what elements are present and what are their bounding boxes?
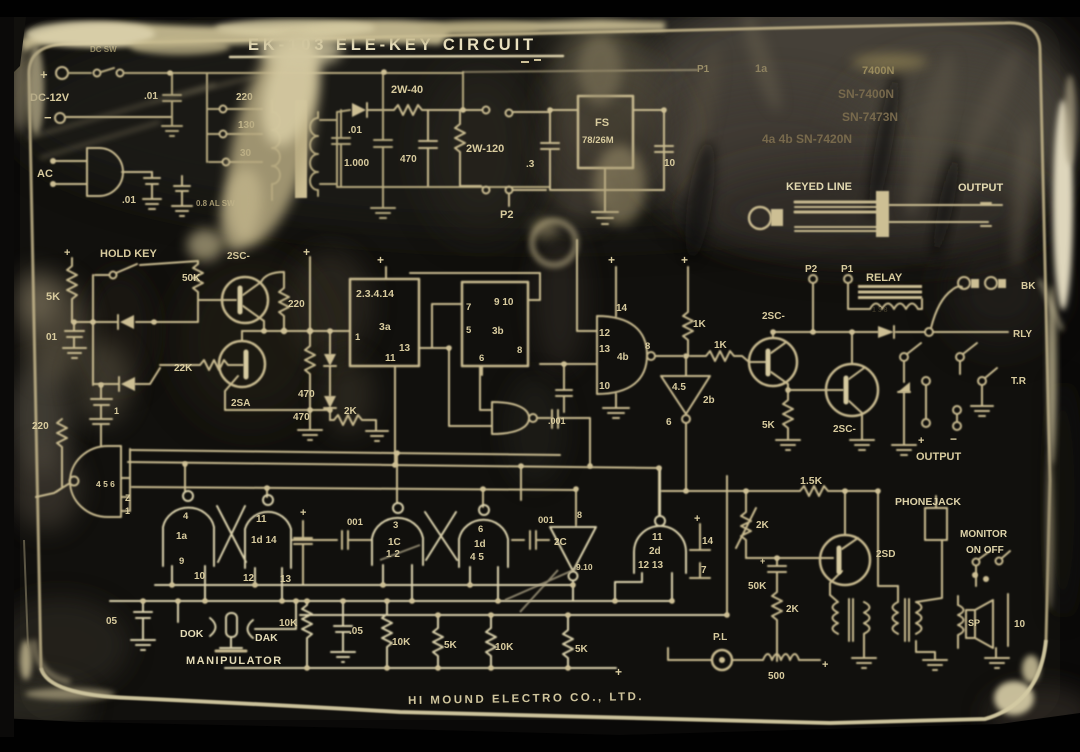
svg-text:HOLD KEY: HOLD KEY: [100, 248, 158, 260]
svg-text:+: +: [377, 253, 384, 267]
svg-text:2SD: 2SD: [876, 549, 895, 560]
svg-text:PHONEJACK: PHONEJACK: [895, 496, 961, 508]
svg-text:01: 01: [46, 332, 58, 343]
svg-text:001: 001: [347, 517, 364, 528]
svg-text:2SC-: 2SC-: [762, 311, 785, 322]
svg-text:5K: 5K: [444, 640, 458, 651]
svg-text:12 13: 12 13: [638, 560, 663, 571]
svg-text:1 3 8: 1 3 8: [872, 307, 888, 314]
svg-text:05: 05: [106, 616, 118, 627]
svg-text:4 5: 4 5: [470, 552, 484, 563]
svg-text:RELAY: RELAY: [866, 272, 903, 284]
svg-text:14: 14: [616, 303, 628, 314]
svg-text:2.3.4.14: 2.3.4.14: [356, 288, 394, 300]
svg-text:5K: 5K: [762, 420, 776, 431]
svg-text:OUTPUT: OUTPUT: [958, 182, 1004, 194]
svg-text:12: 12: [599, 328, 611, 339]
svg-text:+: +: [760, 556, 765, 566]
svg-text:2K: 2K: [786, 604, 800, 615]
svg-text:5K: 5K: [46, 291, 60, 303]
svg-text:1.5K: 1.5K: [800, 475, 823, 487]
svg-text:+: +: [303, 245, 310, 259]
svg-text:6: 6: [478, 524, 483, 535]
svg-text:10K: 10K: [392, 637, 411, 648]
svg-text:220: 220: [288, 299, 305, 310]
svg-text:2SA: 2SA: [231, 398, 250, 409]
svg-text:3: 3: [393, 520, 398, 531]
svg-text:2b: 2b: [703, 395, 715, 406]
svg-text:+: +: [64, 247, 70, 259]
svg-text:2W-40: 2W-40: [391, 84, 423, 96]
svg-text:8: 8: [577, 510, 582, 520]
svg-text:10: 10: [1014, 619, 1026, 630]
svg-text:2SC-: 2SC-: [227, 251, 250, 262]
svg-text:AC: AC: [37, 168, 53, 180]
svg-text:ON OFF: ON OFF: [966, 545, 1004, 556]
svg-text:+: +: [300, 507, 306, 519]
svg-text:001: 001: [538, 515, 555, 526]
svg-text:MONITOR: MONITOR: [960, 529, 1008, 540]
svg-text:4.5: 4.5: [672, 382, 686, 393]
svg-text:SN-7400N: SN-7400N: [838, 87, 894, 101]
svg-text:1C: 1C: [388, 537, 401, 548]
svg-text:+: +: [608, 253, 615, 267]
svg-text:4a 4b SN-7420N: 4a 4b SN-7420N: [762, 132, 852, 146]
svg-text:T.R: T.R: [1011, 376, 1027, 387]
svg-text:+: +: [681, 253, 688, 267]
svg-text:1d: 1d: [474, 539, 486, 550]
svg-text:11: 11: [385, 353, 396, 364]
svg-text:10: 10: [599, 381, 611, 392]
svg-text:1: 1: [125, 506, 130, 516]
svg-text:SN-7473N: SN-7473N: [842, 110, 898, 124]
svg-text:2K: 2K: [756, 520, 770, 531]
svg-text:10K: 10K: [279, 618, 298, 629]
svg-text:14: 14: [702, 536, 714, 547]
svg-text:1: 1: [355, 332, 361, 343]
svg-text:3a: 3a: [379, 321, 391, 333]
svg-text:DOK: DOK: [180, 628, 204, 640]
svg-text:9: 9: [179, 556, 184, 567]
svg-text:7: 7: [466, 302, 471, 313]
svg-text:FS: FS: [595, 117, 609, 129]
svg-text:1.000: 1.000: [344, 158, 369, 169]
svg-text:4b: 4b: [617, 352, 629, 363]
svg-text:DAK: DAK: [255, 632, 278, 644]
svg-text:10K: 10K: [495, 642, 514, 653]
svg-text:10: 10: [194, 571, 206, 582]
svg-text:P.L: P.L: [713, 632, 727, 643]
svg-text:.05: .05: [349, 626, 363, 637]
svg-text:1K: 1K: [714, 340, 728, 351]
svg-text:22K: 22K: [174, 363, 193, 374]
svg-text:P1: P1: [841, 264, 854, 275]
svg-text:470: 470: [298, 389, 315, 400]
svg-text:.01: .01: [122, 195, 136, 206]
svg-text:1d 14: 1d 14: [251, 535, 277, 546]
svg-text:5K: 5K: [575, 644, 589, 655]
svg-text:2C: 2C: [554, 537, 567, 548]
svg-text:1K: 1K: [693, 319, 707, 330]
svg-text:.001: .001: [548, 416, 566, 426]
svg-text:8: 8: [517, 345, 522, 356]
svg-text:KEYED LINE: KEYED LINE: [786, 181, 852, 193]
svg-text:13: 13: [399, 343, 411, 354]
svg-text:5: 5: [466, 325, 472, 336]
svg-text:50K: 50K: [748, 581, 767, 592]
svg-text:1: 1: [114, 406, 119, 416]
svg-text:+: +: [615, 665, 622, 679]
svg-text:MANIPULATOR: MANIPULATOR: [186, 655, 283, 667]
svg-text:+: +: [694, 513, 700, 525]
svg-text:4 5 6: 4 5 6: [96, 479, 115, 489]
svg-text:P1: P1: [697, 64, 710, 75]
svg-text:+: +: [822, 659, 828, 671]
svg-text:1a: 1a: [755, 63, 768, 75]
svg-text:13: 13: [280, 574, 292, 585]
svg-text:+: +: [918, 435, 924, 447]
svg-text:13: 13: [599, 344, 611, 355]
svg-text:78/26M: 78/26M: [582, 135, 614, 146]
svg-text:SP: SP: [968, 618, 980, 628]
svg-text:8: 8: [645, 341, 650, 352]
svg-text:470: 470: [400, 154, 417, 165]
svg-text:11: 11: [256, 514, 267, 525]
svg-text:470: 470: [293, 412, 310, 423]
svg-text:Z: Z: [125, 493, 131, 503]
svg-text:12: 12: [243, 573, 255, 584]
svg-text:2SC-: 2SC-: [833, 424, 856, 435]
svg-text:7: 7: [701, 565, 707, 576]
svg-text:.3: .3: [526, 159, 535, 170]
svg-text:−: −: [950, 432, 957, 446]
svg-text:9 10: 9 10: [494, 297, 514, 308]
svg-text:.01: .01: [348, 125, 362, 136]
svg-text:10: 10: [664, 158, 676, 169]
svg-text:−: −: [44, 110, 52, 125]
svg-text:2W-120: 2W-120: [466, 143, 504, 155]
svg-text:RLY: RLY: [1013, 329, 1032, 340]
svg-text:2d: 2d: [649, 546, 661, 557]
svg-text:OUTPUT: OUTPUT: [916, 451, 962, 463]
svg-text:6: 6: [666, 417, 672, 428]
svg-text:220: 220: [32, 421, 49, 432]
svg-text:3b: 3b: [492, 326, 504, 337]
svg-text:4: 4: [183, 511, 189, 522]
svg-text:2K: 2K: [344, 406, 358, 417]
svg-text:9.10: 9.10: [576, 562, 593, 572]
svg-text:P2: P2: [500, 209, 513, 221]
svg-text:50K: 50K: [182, 273, 201, 284]
svg-text:1a: 1a: [176, 531, 188, 542]
svg-text:BK: BK: [1021, 281, 1036, 292]
svg-text:6: 6: [479, 353, 484, 364]
svg-text:500: 500: [768, 671, 785, 682]
svg-text:11: 11: [652, 532, 663, 543]
svg-text:P2: P2: [805, 264, 818, 275]
